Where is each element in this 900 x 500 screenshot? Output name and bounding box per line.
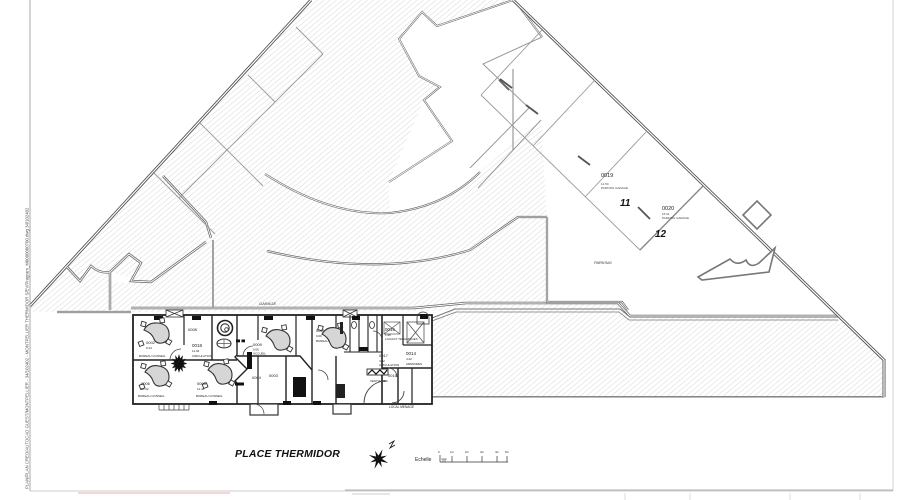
svg-text:0017: 0017 [379,353,389,358]
svg-text:3m: 3m [480,450,485,454]
svg-text:4.22: 4.22 [406,357,412,361]
svg-text:0006: 0006 [141,381,151,386]
svg-text:CIRCULATION: CIRCULATION [192,354,212,358]
svg-text:0015: 0015 [388,373,398,378]
svg-text:11.04: 11.04 [192,349,200,353]
svg-text:0014: 0014 [406,351,417,356]
svg-text:10.42: 10.42 [141,387,149,391]
svg-text:0: 0 [438,450,440,454]
svg-text:0016: 0016 [385,327,396,332]
svg-text:11.46: 11.46 [197,387,205,391]
svg-text:BUREAU CONSEIL: BUREAU CONSEIL [139,354,166,358]
svg-text:0003: 0003 [269,373,279,378]
svg-text:ARMOIRES: ARMOIRES [406,362,422,366]
svg-text:1m: 1m [450,450,455,454]
svg-text:0019: 0019 [601,173,613,179]
svg-text:5m: 5m [505,450,510,454]
svg-text:0005: 0005 [197,381,207,386]
svg-text:BUREAU: BUREAU [316,339,329,343]
svg-text:LOCAUX TECHNIQUES: LOCAUX TECHNIQUES [385,337,418,341]
svg-text:12: 12 [655,229,667,240]
svg-text:GARAGE: GARAGE [259,301,276,306]
svg-text:PLAN/PLAN CREO/AUTOCAD GUEST: PLAN/PLAN CREO/AUTOCAD GUEST/MONTPELLIER… [25,207,30,489]
svg-text:0008: 0008 [188,327,198,332]
svg-text:0002: 0002 [146,340,156,345]
svg-text:PARKING GARAGE: PARKING GARAGE [601,186,628,190]
svg-text:CIRCULATION: CIRCULATION [379,363,399,367]
svg-text:9.06: 9.06 [316,334,322,338]
svg-text:0009: 0009 [253,342,263,347]
svg-text:0018: 0018 [192,343,203,348]
svg-text:11: 11 [620,198,631,209]
svg-text:PARKING GARAGE: PARKING GARAGE [662,216,689,220]
svg-text:4m: 4m [495,450,500,454]
svg-text:BUREAU CONSEIL: BUREAU CONSEIL [138,394,165,398]
svg-text:PLACE THERMIDOR: PLACE THERMIDOR [235,448,340,460]
svg-text:PARKING: PARKING [594,260,612,265]
svg-text:ACCUEIL: ACCUEIL [253,352,266,356]
svg-text:2m: 2m [465,450,470,454]
svg-text:0001: 0001 [316,328,326,333]
svg-text:BUREAU CONSEIL: BUREAU CONSEIL [196,394,223,398]
svg-text:9.44: 9.44 [146,346,152,350]
svg-text:0004: 0004 [252,375,262,380]
svg-text:LOCAL MENAGE: LOCAL MENAGE [389,405,414,409]
svg-text:Echelle: Echelle [415,457,432,463]
